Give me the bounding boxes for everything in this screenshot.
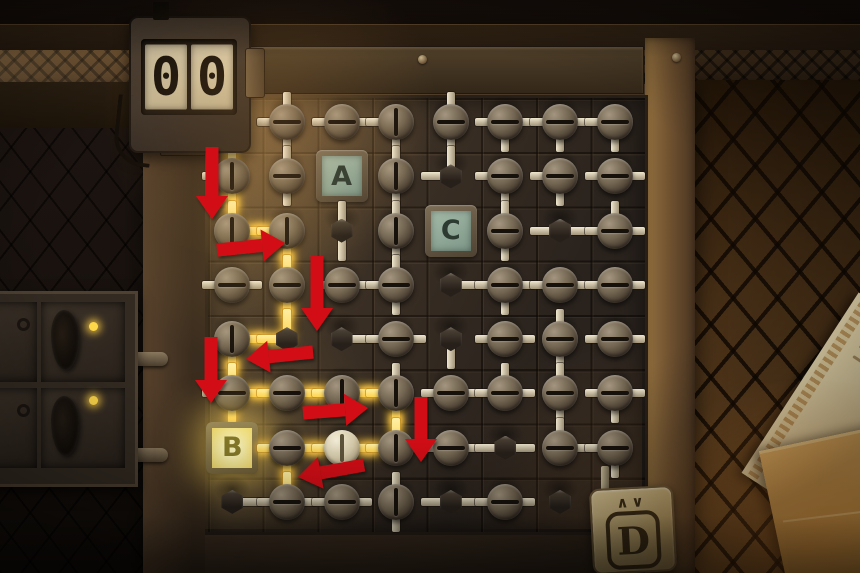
tile-letter: C: [431, 211, 471, 251]
grid-knob-c6r8[interactable]: [487, 484, 523, 520]
grid-knob-c3r6[interactable]: [324, 375, 360, 411]
indicator-led: [89, 396, 98, 405]
knob-slot: [491, 120, 519, 124]
grid-node-c3r4: [314, 257, 370, 313]
tile-letter: B: [212, 428, 252, 468]
knob-slot: [491, 229, 519, 233]
grid-knob-c4r2[interactable]: [378, 158, 414, 194]
knob-slot: [437, 120, 465, 124]
knob-slot: [546, 283, 574, 287]
grid-knob-c5r6[interactable]: [433, 375, 469, 411]
knob-slot: [601, 229, 629, 233]
grid-node-c2r3: [259, 203, 315, 259]
grid-node-c4r3: [368, 203, 424, 259]
hex-nut: [549, 219, 571, 243]
knob-slot: [394, 488, 398, 516]
knob-slot: [340, 434, 344, 462]
grid-node-c4r2: [368, 148, 424, 204]
grid-node-c1r5: [204, 311, 260, 367]
grid-node-c3r7: [314, 420, 370, 476]
grid-knob-c4r1[interactable]: [378, 104, 414, 140]
hex-nut: [440, 327, 462, 351]
knob-slot: [394, 217, 398, 245]
knob-slot: [382, 337, 410, 341]
grid-knob-c5r1[interactable]: [433, 104, 469, 140]
knob-slot: [546, 120, 574, 124]
knob-slot: [230, 217, 234, 245]
grid-node-c7r8: [532, 474, 588, 530]
grid-knob-c7r4[interactable]: [542, 267, 578, 303]
grid-node-c6r2: [477, 148, 533, 204]
grid-node-c6r3: [477, 203, 533, 259]
hex-nut: [276, 327, 298, 351]
hex-nut: [440, 273, 462, 297]
grid-node-c5r4: [423, 257, 479, 313]
knob-slot: [273, 120, 301, 124]
grid-knob-c6r1[interactable]: [487, 104, 523, 140]
grid-knob-c3r8[interactable]: [324, 484, 360, 520]
grid-node-c6r7: [477, 420, 533, 476]
move-counter: 0 0: [129, 16, 251, 153]
grid-knob-c2r2[interactable]: [269, 158, 305, 194]
grid-knob-c4r3[interactable]: [378, 213, 414, 249]
grid-node-c7r6: [532, 365, 588, 421]
grid-node-c8r4: [587, 257, 643, 313]
counter-window: 0 0: [141, 39, 237, 115]
grid-knob-c1r4[interactable]: [214, 267, 250, 303]
grid-knob-c8r3[interactable]: [597, 213, 633, 249]
grid-knob-c2r4[interactable]: [269, 267, 305, 303]
grid-node-c1r8: [204, 474, 260, 530]
grid-node-c7r3: [532, 203, 588, 259]
grid-knob-c6r5[interactable]: [487, 321, 523, 357]
grid-node-c5r2: [423, 148, 479, 204]
knob-slot: [382, 283, 410, 287]
grid-knob-c2r7[interactable]: [269, 430, 305, 466]
knob-slot: [394, 434, 398, 462]
knob-slot: [601, 283, 629, 287]
counter-digit: 0: [145, 44, 187, 109]
grid-knob-c2r1[interactable]: [269, 104, 305, 140]
grid-node-c2r8: [259, 474, 315, 530]
grid-node-c6r1: [477, 94, 533, 150]
counter-digit: 0: [191, 44, 233, 109]
knob-slot: [273, 283, 301, 287]
hex-nut: [440, 490, 462, 514]
grid-node-c4r5: [368, 311, 424, 367]
grid-knob-c7r2[interactable]: [542, 158, 578, 194]
grid-node-c1r3: [204, 203, 260, 259]
knob-slot: [394, 379, 398, 407]
grid-node-c7r4: [532, 257, 588, 313]
knob-slot: [273, 500, 301, 504]
knob-slot: [546, 391, 574, 395]
grid-knob-c1r5[interactable]: [214, 321, 250, 357]
indicator-led: [89, 322, 98, 331]
knob-slot: [491, 283, 519, 287]
knob-slot: [394, 162, 398, 190]
grid-node-c3r1: [314, 94, 370, 150]
counter-hinge: [245, 48, 265, 98]
knob-slot: [601, 446, 629, 450]
tile-letter: A: [322, 156, 362, 196]
hex-nut: [331, 327, 353, 351]
grid-node-c8r2: [587, 148, 643, 204]
grid-knob-c8r6[interactable]: [597, 375, 633, 411]
grid-knob-c8r7[interactable]: [597, 430, 633, 466]
grid-node-c4r4: [368, 257, 424, 313]
knob-slot: [546, 337, 574, 341]
panel-cell: [0, 302, 37, 382]
hex-nut: [549, 490, 571, 514]
grid-node-c3r6: [314, 365, 370, 421]
knob-slot: [394, 108, 398, 136]
d-switch-pin: [601, 466, 609, 490]
grid-node-c7r5: [532, 311, 588, 367]
grid-knob-c4r5[interactable]: [378, 321, 414, 357]
grid-node-c2r7: [259, 420, 315, 476]
knob-slot: [285, 217, 289, 245]
grid-knob-c7r1[interactable]: [542, 104, 578, 140]
grid-node-c8r6: [587, 365, 643, 421]
grid-knob-c7r5[interactable]: [542, 321, 578, 357]
grid-knob-c7r6[interactable]: [542, 375, 578, 411]
grid-node-c3r5: [314, 311, 370, 367]
tile-a: A: [316, 150, 368, 202]
knob-slot: [601, 337, 629, 341]
knob-slot: [340, 379, 344, 407]
grid-node-c6r8: [477, 474, 533, 530]
grid-node-c6r5: [477, 311, 533, 367]
d-ring: D: [605, 510, 662, 571]
lever-panel: [0, 291, 138, 487]
panel-ring: [17, 318, 30, 331]
knob-slot: [491, 391, 519, 395]
grid-node-c5r7: [423, 420, 479, 476]
grid-knob-c1r2[interactable]: [214, 158, 250, 194]
grid-node-c1r4: [204, 257, 260, 313]
grid-knob-c2r3[interactable]: [269, 213, 305, 249]
knob-slot: [273, 446, 301, 450]
grid-knob-c8r1[interactable]: [597, 104, 633, 140]
counter-pipe: [153, 2, 169, 20]
grid-node-c6r6: [477, 365, 533, 421]
knob-slot: [437, 446, 465, 450]
grid-knob-c6r6[interactable]: [487, 375, 523, 411]
knob-slot: [491, 500, 519, 504]
knob-slot: [328, 120, 356, 124]
knob-slot: [546, 174, 574, 178]
knob-slot: [601, 120, 629, 124]
grid-node-c8r1: [587, 94, 643, 150]
grid-node-c5r5: [423, 311, 479, 367]
grid-node-c7r2: [532, 148, 588, 204]
white-knob-c3r7[interactable]: [324, 430, 360, 466]
grid-knob-c7r7[interactable]: [542, 430, 578, 466]
tile-c: C: [425, 205, 477, 257]
puzzle-scene: ACB 0 0 ∧∨ D: [0, 0, 860, 573]
d-switch[interactable]: ∧∨ D: [589, 485, 677, 573]
knob-slot: [273, 391, 301, 395]
grid-knob-c8r5[interactable]: [597, 321, 633, 357]
grid-node-c2r4: [259, 257, 315, 313]
grid-node-c4r7: [368, 420, 424, 476]
panel-ring: [17, 404, 30, 417]
grid-node-c1r2: [204, 148, 260, 204]
grid-node-c3r8: [314, 474, 370, 530]
grid-knob-c6r3[interactable]: [487, 213, 523, 249]
hex-nut: [440, 164, 462, 188]
knob-slot: [273, 174, 301, 178]
d-label: D: [616, 517, 651, 564]
grid-node-c4r1: [368, 94, 424, 150]
grid-node-c2r2: [259, 148, 315, 204]
grid-knob-c6r4[interactable]: [487, 267, 523, 303]
grid-knob-c4r6[interactable]: [378, 375, 414, 411]
hex-nut: [331, 219, 353, 243]
knob-slot: [601, 174, 629, 178]
grid-node-c7r7: [532, 420, 588, 476]
grid-node-c5r6: [423, 365, 479, 421]
grid-node-c5r1: [423, 94, 479, 150]
grid-node-c2r1: [259, 94, 315, 150]
grid-knob-c3r1[interactable]: [324, 104, 360, 140]
grid-knob-c2r6[interactable]: [269, 375, 305, 411]
grid-knob-c4r8[interactable]: [378, 484, 414, 520]
grid-knob-c8r2[interactable]: [597, 158, 633, 194]
grid-node-c2r5: [259, 311, 315, 367]
grid-node-c6r4: [477, 257, 533, 313]
knob-slot: [230, 162, 234, 190]
grid-node-c5r8: [423, 474, 479, 530]
grid-node-c4r8: [368, 474, 424, 530]
tile-b: B: [206, 422, 258, 474]
grid-knob-c5r7[interactable]: [433, 430, 469, 466]
grid-knob-c2r8[interactable]: [269, 484, 305, 520]
grid-node-c3r3: [314, 203, 370, 259]
grid-knob-c6r2[interactable]: [487, 158, 523, 194]
grid-knob-c1r3[interactable]: [214, 213, 250, 249]
grid-node-c1r6: [204, 365, 260, 421]
grid-node-c4r6: [368, 365, 424, 421]
grid-knob-c4r7[interactable]: [378, 430, 414, 466]
knob-slot: [491, 337, 519, 341]
knob-slot: [546, 446, 574, 450]
grid-knob-c3r4[interactable]: [324, 267, 360, 303]
grid-node-c8r3: [587, 203, 643, 259]
knob-slot: [328, 500, 356, 504]
grid-node-c7r1: [532, 94, 588, 150]
panel-cell: [0, 388, 37, 468]
grid-node-c8r5: [587, 311, 643, 367]
grid-knob-c8r4[interactable]: [597, 267, 633, 303]
knob-slot: [491, 174, 519, 178]
knob-slot: [601, 391, 629, 395]
up-down-carets-icon: ∧∨: [616, 494, 647, 510]
grid-knob-c1r6[interactable]: [214, 375, 250, 411]
hex-nut: [494, 436, 516, 460]
knob-slot: [437, 391, 465, 395]
grid-node-c2r6: [259, 365, 315, 421]
knob-slot: [218, 283, 246, 287]
knob-slot: [218, 391, 246, 395]
knob-slot: [328, 283, 356, 287]
grid-knob-c4r4[interactable]: [378, 267, 414, 303]
knob-slot: [230, 325, 234, 353]
grid-node-c8r7: [587, 420, 643, 476]
hex-nut: [221, 490, 243, 514]
